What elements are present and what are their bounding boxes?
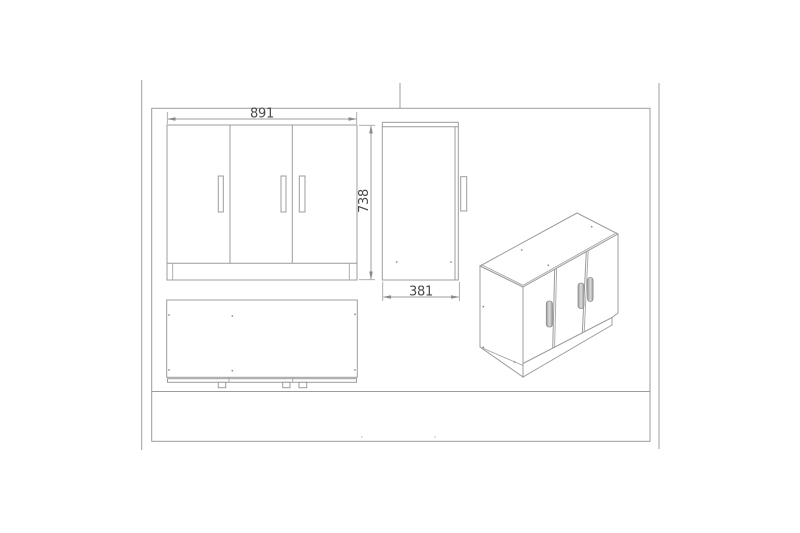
iso-door1-handle (546, 301, 552, 327)
iso-fitting-dot (482, 346, 484, 348)
front-door2-handle (281, 176, 286, 212)
iso-door2-handle (578, 283, 584, 309)
isometric-view (480, 213, 618, 377)
frame-mark-dot (361, 436, 363, 438)
iso-fitting-dot (547, 264, 549, 266)
top-view-outline (167, 300, 358, 377)
width-dimension-label: 891 (250, 107, 274, 122)
height-dimension-label: 738 (357, 189, 372, 213)
dimension-width: 891 (167, 107, 357, 125)
top-fitting-dot (231, 315, 233, 317)
dimension-depth: 381 (383, 282, 460, 301)
top-fitting-dot (354, 313, 356, 315)
top-fitting-dot (354, 369, 356, 371)
dim-width-arrow-right (349, 117, 358, 121)
front-view-outline (167, 125, 357, 280)
top-fitting-dot (168, 314, 170, 316)
iso-fitting-dot (514, 361, 516, 363)
side-door-handle (461, 177, 467, 211)
side-fitting-dot (450, 261, 452, 263)
cabinet-technical-drawing: 891 738 381 (0, 0, 800, 533)
iso-fitting-dot (482, 306, 484, 308)
dimension-height: 738 (357, 125, 375, 280)
dim-depth-arrow-right (451, 295, 459, 299)
top-handle-tab-2 (283, 382, 290, 387)
dim-width-arrow-left (167, 117, 176, 121)
depth-dimension-label: 381 (409, 285, 433, 300)
iso-door3-handle (588, 278, 594, 302)
side-view (382, 122, 466, 280)
side-view-outline (382, 122, 458, 280)
top-view-front-edge-strip (168, 379, 357, 383)
front-view (167, 125, 357, 280)
front-door3-handle (299, 176, 305, 212)
side-fitting-dot (396, 261, 398, 263)
dim-height-arrow-top (369, 125, 373, 134)
top-handle-tab-3 (299, 382, 307, 387)
front-door1-handle (218, 176, 223, 212)
top-fitting-dot (168, 369, 170, 371)
dim-height-arrow-bottom (369, 272, 373, 281)
top-handle-tab-1 (218, 382, 225, 387)
top-view (167, 300, 358, 388)
frame-mark-dot (434, 436, 436, 438)
technical-drawing-page: 891 738 381 (0, 0, 800, 533)
iso-fitting-dot (591, 226, 593, 228)
top-fitting-dot (231, 370, 233, 372)
iso-fitting-dot (521, 249, 523, 251)
dim-depth-arrow-left (383, 295, 391, 299)
